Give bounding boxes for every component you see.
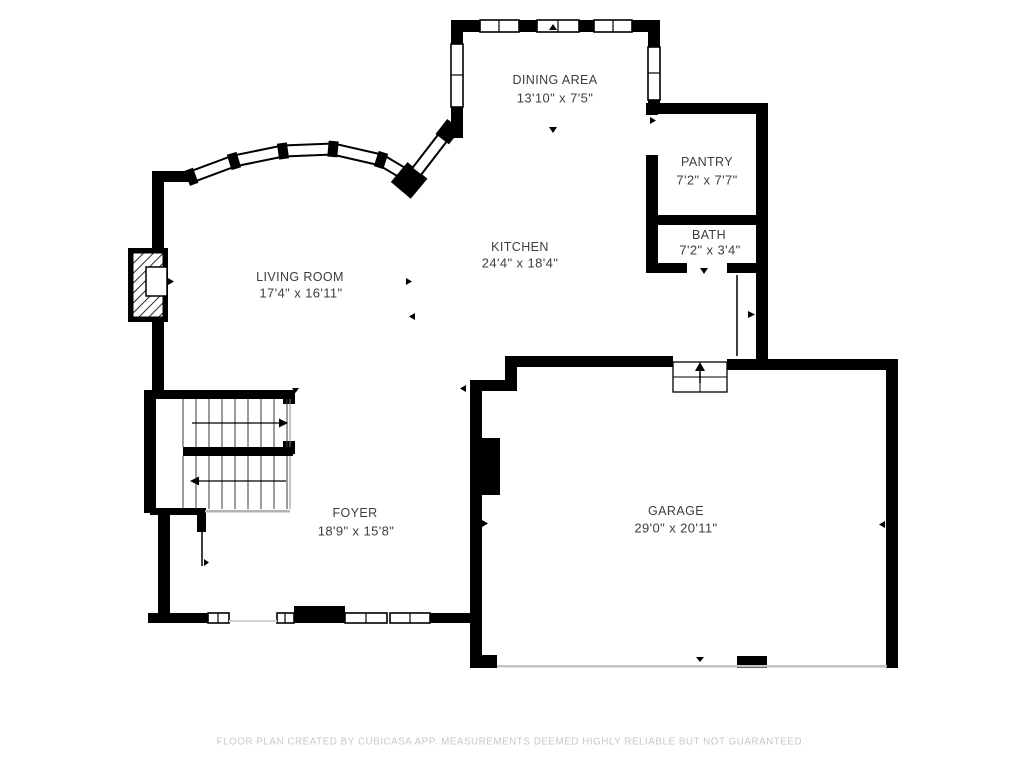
stair-door-leaf: [202, 532, 209, 566]
room-label-foyer: FOYER: [332, 506, 377, 520]
windows: [208, 20, 660, 623]
fireplace: [128, 248, 168, 322]
window-mullions: [218, 20, 660, 623]
room-label-pantry: PANTRY: [681, 155, 733, 169]
room-label-bath: BATH: [692, 228, 726, 242]
stairs-down-arrow: [190, 477, 286, 486]
room-dims-pantry: 7'2" x 7'7": [676, 173, 737, 188]
opening-lines: [205, 510, 887, 668]
direction-ticks: [168, 24, 885, 662]
floorplan-page: DINING AREA 13'10" x 7'5" PANTRY 7'2" x …: [0, 0, 1024, 768]
room-label-garage: GARAGE: [648, 504, 704, 518]
room-label-kitchen: KITCHEN: [491, 240, 549, 254]
bay-window: [185, 141, 428, 199]
hall-door-leaf: [737, 275, 755, 356]
room-dims-garage: 29'0" x 20'11": [634, 521, 717, 536]
diagonal-window: [417, 119, 461, 171]
room-dims-foyer: 18'9" x 15'8": [318, 524, 395, 539]
footer-disclaimer: FLOOR PLAN CREATED BY CUBICASA APP. MEAS…: [217, 737, 806, 748]
room-dims-kitchen: 24'4" x 18'4": [482, 256, 559, 271]
stair-treads-lower: [183, 456, 290, 509]
room-dims-living-room: 17'4" x 16'11": [259, 286, 342, 301]
room-label-dining-area: DINING AREA: [513, 73, 598, 87]
room-dims-dining-area: 13'10" x 7'5": [517, 91, 594, 106]
room-dims-bath: 7'2" x 3'4": [679, 243, 740, 258]
floorplan-drawing: [0, 0, 1024, 768]
walls: [144, 20, 898, 668]
room-label-living-room: LIVING ROOM: [256, 270, 344, 284]
garage-entry-steps: [673, 362, 727, 392]
